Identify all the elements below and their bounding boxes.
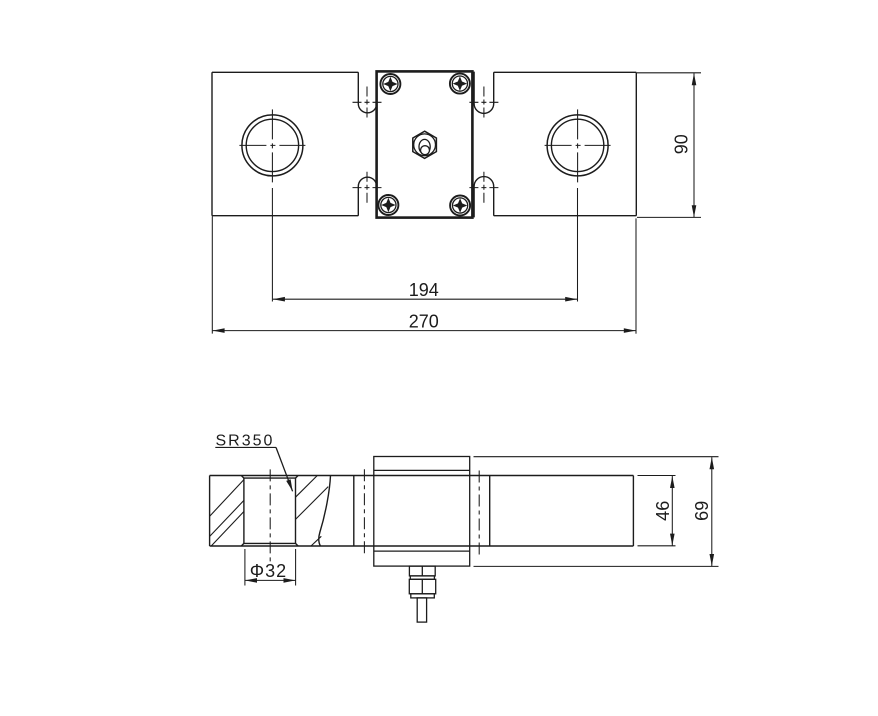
svg-text:46: 46: [653, 501, 673, 521]
svg-text:Φ32: Φ32: [250, 561, 287, 581]
svg-text:90: 90: [672, 134, 692, 154]
svg-text:194: 194: [409, 280, 439, 300]
svg-text:270: 270: [409, 311, 439, 331]
svg-text:69: 69: [692, 501, 712, 521]
